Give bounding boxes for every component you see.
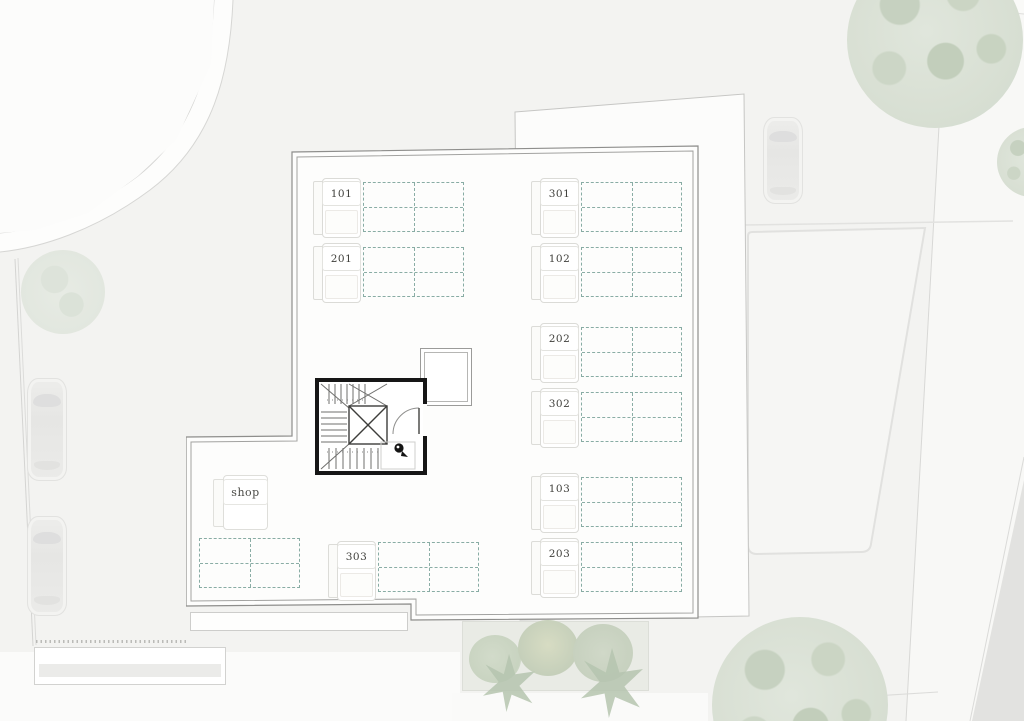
parking-unit-202: 202 [531,323,579,383]
parking-grid [581,182,682,232]
lift-plate-lower [340,573,373,597]
unit-number: 203 [540,541,579,566]
parking-unit-101: 101 [313,178,361,238]
lift-plate-lower [543,570,576,594]
floor-plan: 101 301 201 102 202 [186,140,700,626]
parking-unit-303: 303 [328,541,376,601]
parking-grid [581,327,682,377]
south-paving [452,693,708,721]
shop-unit: shop [213,475,268,530]
unit-number: 301 [540,181,579,206]
parking-unit-103: 103 [531,473,579,533]
unit-number: 202 [540,326,579,351]
planter-strip [462,621,649,691]
offsite-area [0,0,214,233]
lift-plate-lower [325,275,358,299]
parking-unit-301: 301 [531,178,579,238]
unit-number: 103 [540,476,579,501]
unit-number: 102 [540,246,579,271]
shaft-annex [420,348,472,406]
lift-plate-lower [543,210,576,234]
car-top-view-icon [27,378,67,481]
door-swing-arc-icon [393,408,419,434]
parking-grid [581,477,682,527]
parking-grid [581,392,682,442]
tree-canopy-icon [21,250,105,334]
stair-symbol-icon [394,443,408,457]
parking-unit-302: 302 [531,388,579,448]
retaining-wall-shading [39,664,221,677]
lift-plate-lower [543,420,576,444]
lift-plate-lower [325,210,358,234]
parking-grid [581,542,682,592]
car-top-view-icon [27,516,67,616]
parking-grid [581,247,682,297]
illegible-annotation-text [36,640,186,643]
parking-unit-201: 201 [313,243,361,303]
stair-core [315,378,427,475]
lift-plate-lower [543,275,576,299]
unit-number: 303 [337,544,376,569]
shop-label: shop [223,479,268,505]
elevator-shaft-icon [349,406,387,444]
parking-unit-203: 203 [531,538,579,598]
parking-grid [363,182,464,232]
lift-plate-lower [543,355,576,379]
lift-plate-lower [543,505,576,529]
door-opening [423,404,427,436]
bush-icon [518,620,578,676]
parking-grid [378,542,479,592]
parking-unit-102: 102 [531,243,579,303]
stair-flight-with-elevator-icon [319,382,423,471]
unit-number: 201 [322,246,361,271]
retaining-wall [34,647,226,685]
unit-number: 101 [322,181,361,206]
unit-number: 302 [540,391,579,416]
car-top-view-icon [763,117,803,204]
driveway-court [748,228,925,554]
site-plan-canvas: 101 301 201 102 202 [0,0,1024,721]
parking-grid [363,247,464,297]
parking-grid-unassigned [199,538,300,588]
